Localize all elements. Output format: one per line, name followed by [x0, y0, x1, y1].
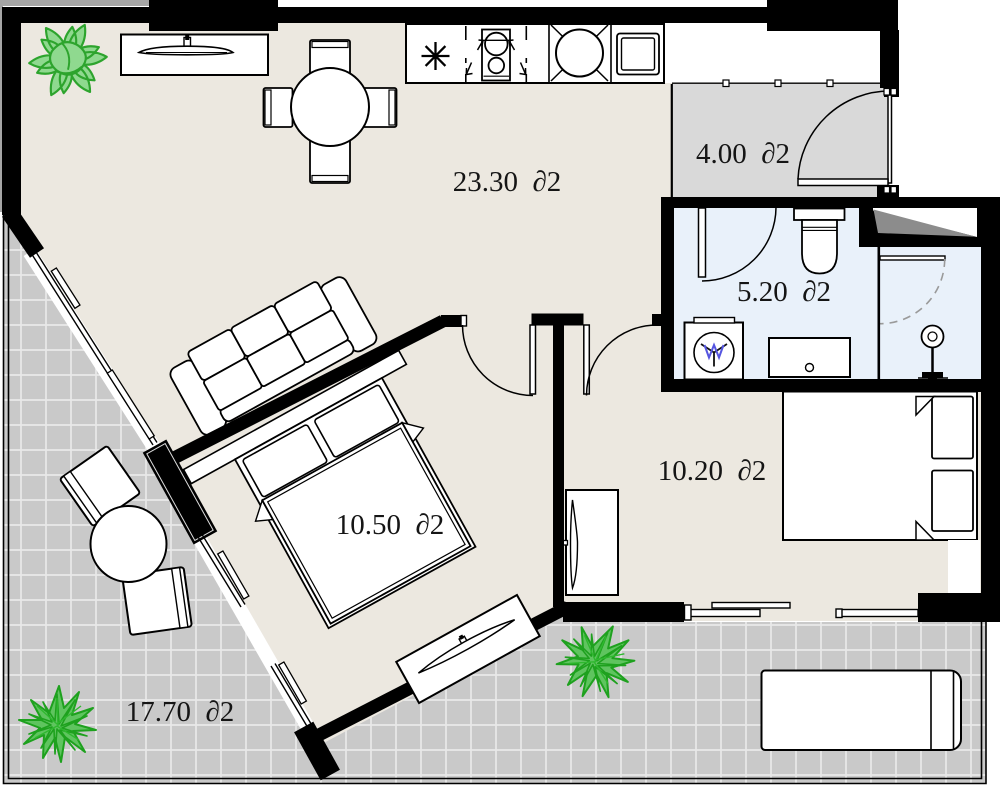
svg-text:10.50 ∂2: 10.50 ∂2	[336, 509, 445, 541]
svg-text:17.70 ∂2: 17.70 ∂2	[126, 696, 235, 728]
svg-text:23.30 ∂2: 23.30 ∂2	[453, 166, 562, 198]
svg-text:4.00 ∂2: 4.00 ∂2	[696, 138, 790, 170]
svg-text:10.20 ∂2: 10.20 ∂2	[658, 455, 767, 487]
svg-text:5.20 ∂2: 5.20 ∂2	[737, 276, 831, 308]
